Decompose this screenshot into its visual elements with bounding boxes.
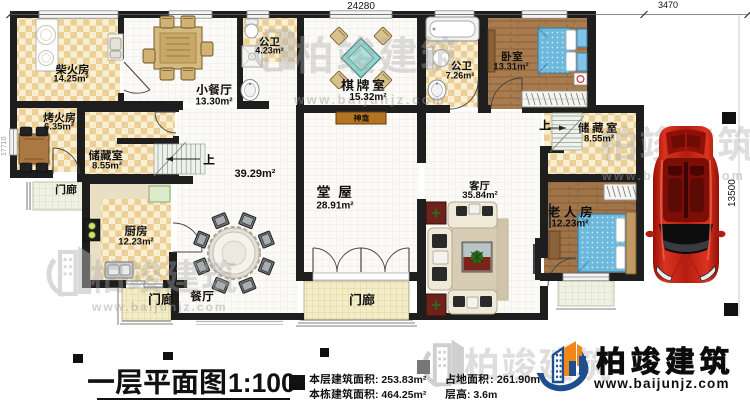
svg-text:: 261.90m²: : 261.90m² xyxy=(490,374,544,386)
svg-text:14.25m²: 14.25m² xyxy=(53,74,88,85)
svg-text:3470: 3470 xyxy=(658,0,678,10)
svg-text:1:100: 1:100 xyxy=(228,368,296,398)
svg-text:13500: 13500 xyxy=(727,179,738,207)
svg-text:13.31m²: 13.31m² xyxy=(493,62,528,73)
svg-text:12.23m²: 12.23m² xyxy=(551,219,589,230)
svg-text:15.32m²: 15.32m² xyxy=(349,92,387,103)
svg-text:39.29m²: 39.29m² xyxy=(235,168,276,180)
svg-text:8.55m²: 8.55m² xyxy=(584,134,614,145)
svg-text:: 464.25m²: : 464.25m² xyxy=(375,389,427,401)
svg-text:: 253.83m²: : 253.83m² xyxy=(375,374,427,386)
svg-text:: 3.6m: : 3.6m xyxy=(467,389,497,401)
svg-text:13.30m²: 13.30m² xyxy=(195,97,233,108)
svg-text:12.23m²: 12.23m² xyxy=(118,237,153,248)
svg-text:8.55m²: 8.55m² xyxy=(92,161,122,172)
svg-text:28.91m²: 28.91m² xyxy=(316,201,354,212)
svg-text:7.26m²: 7.26m² xyxy=(446,71,475,81)
svg-text:www.baijunjz.com: www.baijunjz.com xyxy=(593,376,730,391)
svg-text:6.35m²: 6.35m² xyxy=(44,122,74,133)
svg-text:17710: 17710 xyxy=(1,136,8,156)
svg-text:35.84m²: 35.84m² xyxy=(462,190,497,201)
svg-text:24280: 24280 xyxy=(347,1,375,12)
svg-text:4.23m²: 4.23m² xyxy=(255,46,284,56)
